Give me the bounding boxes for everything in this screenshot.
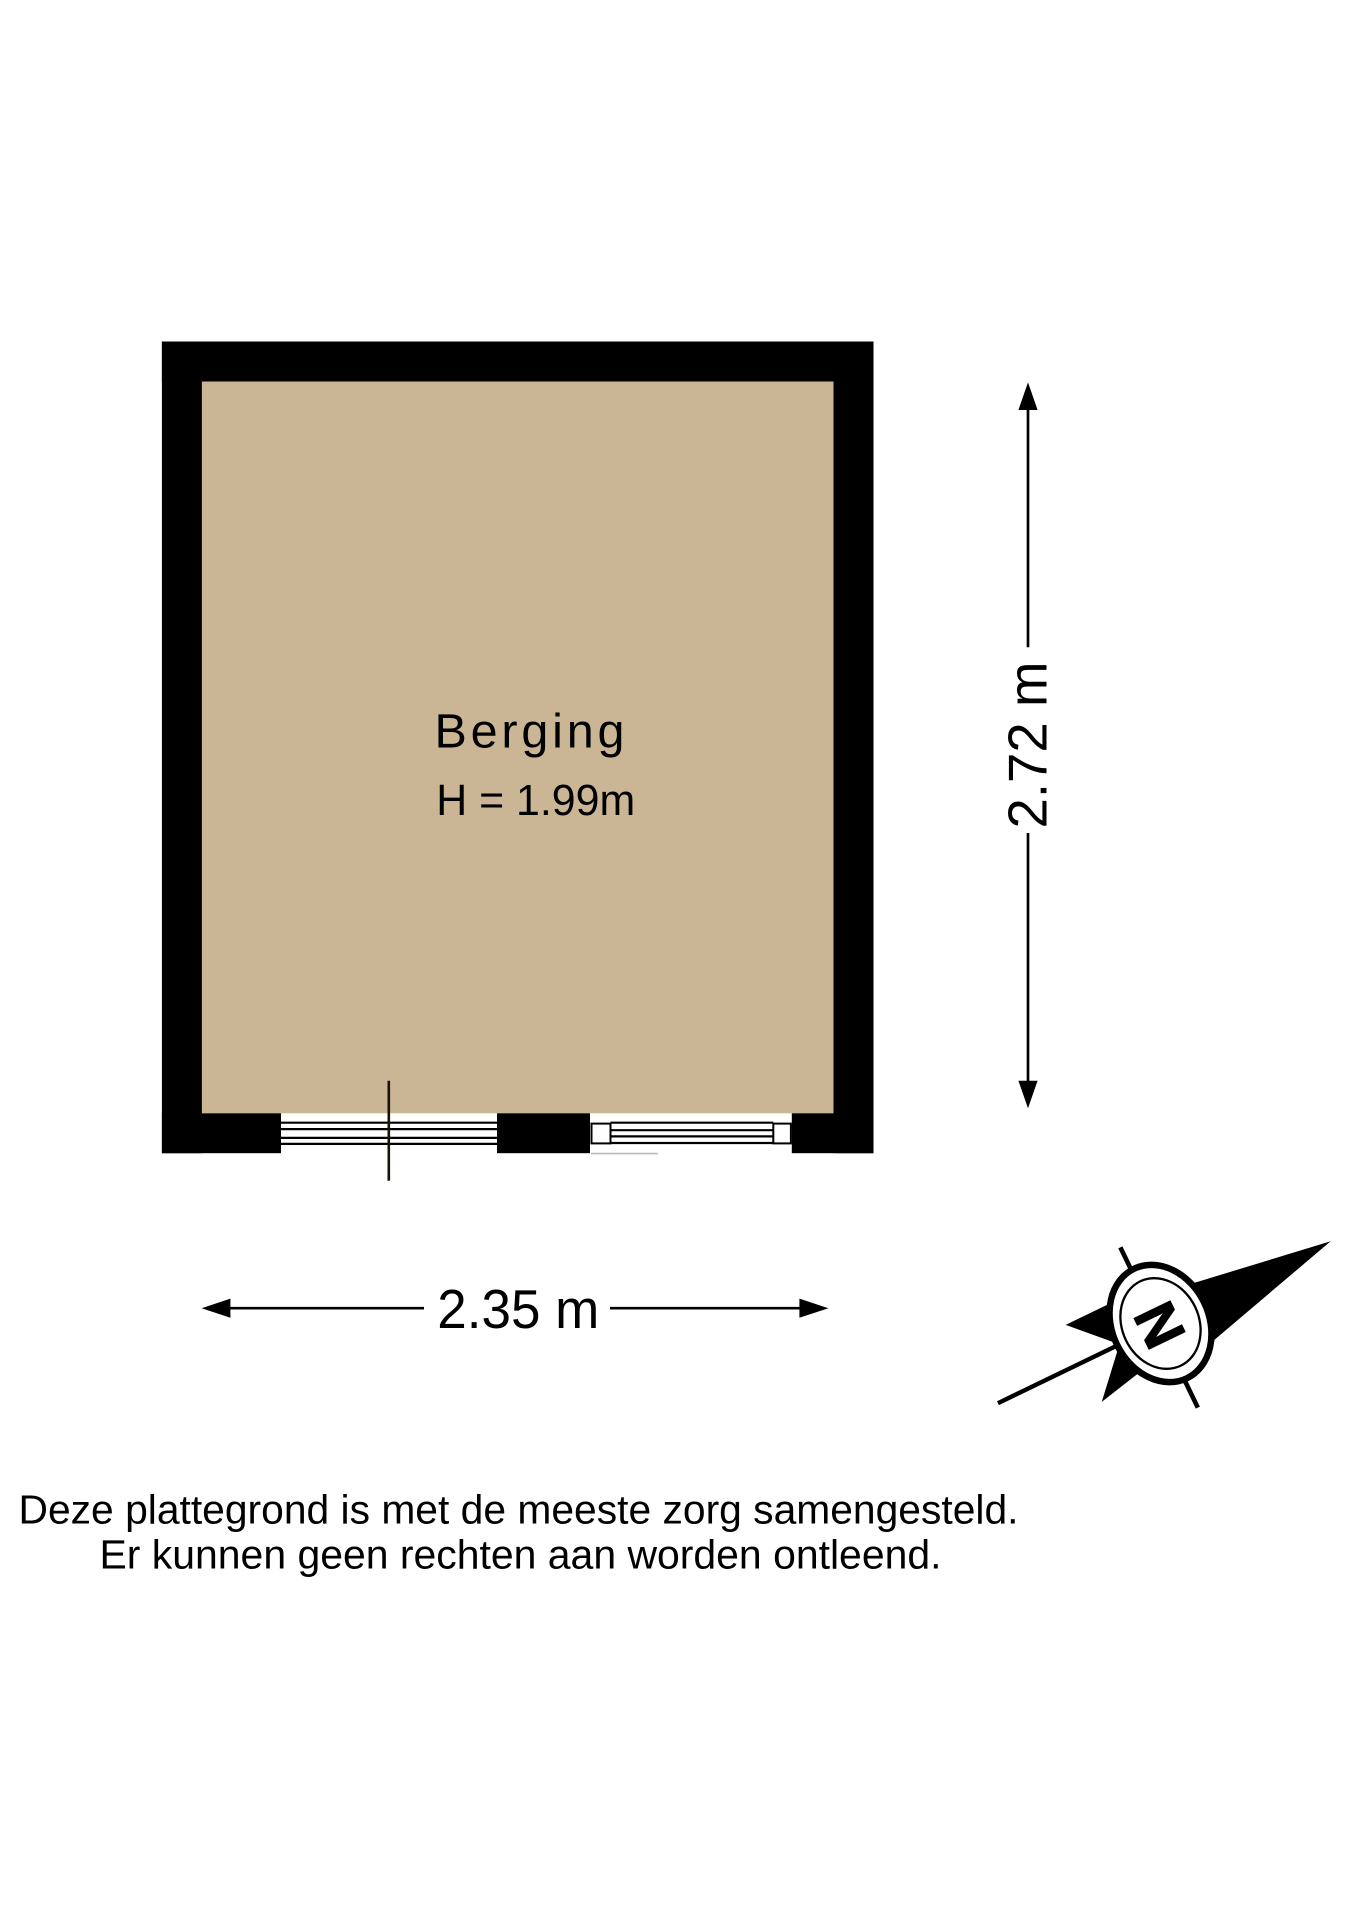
svg-text:2.72 m: 2.72 m xyxy=(997,662,1059,829)
svg-text:Er kunnen geen rechten aan wor: Er kunnen geen rechten aan worden ontlee… xyxy=(100,1531,942,1577)
svg-text:H = 1.99m: H = 1.99m xyxy=(436,777,635,825)
svg-text:2.35 m: 2.35 m xyxy=(437,1278,599,1340)
svg-text:Deze plattegrond is met de mee: Deze plattegrond is met de meeste zorg s… xyxy=(19,1486,1019,1532)
